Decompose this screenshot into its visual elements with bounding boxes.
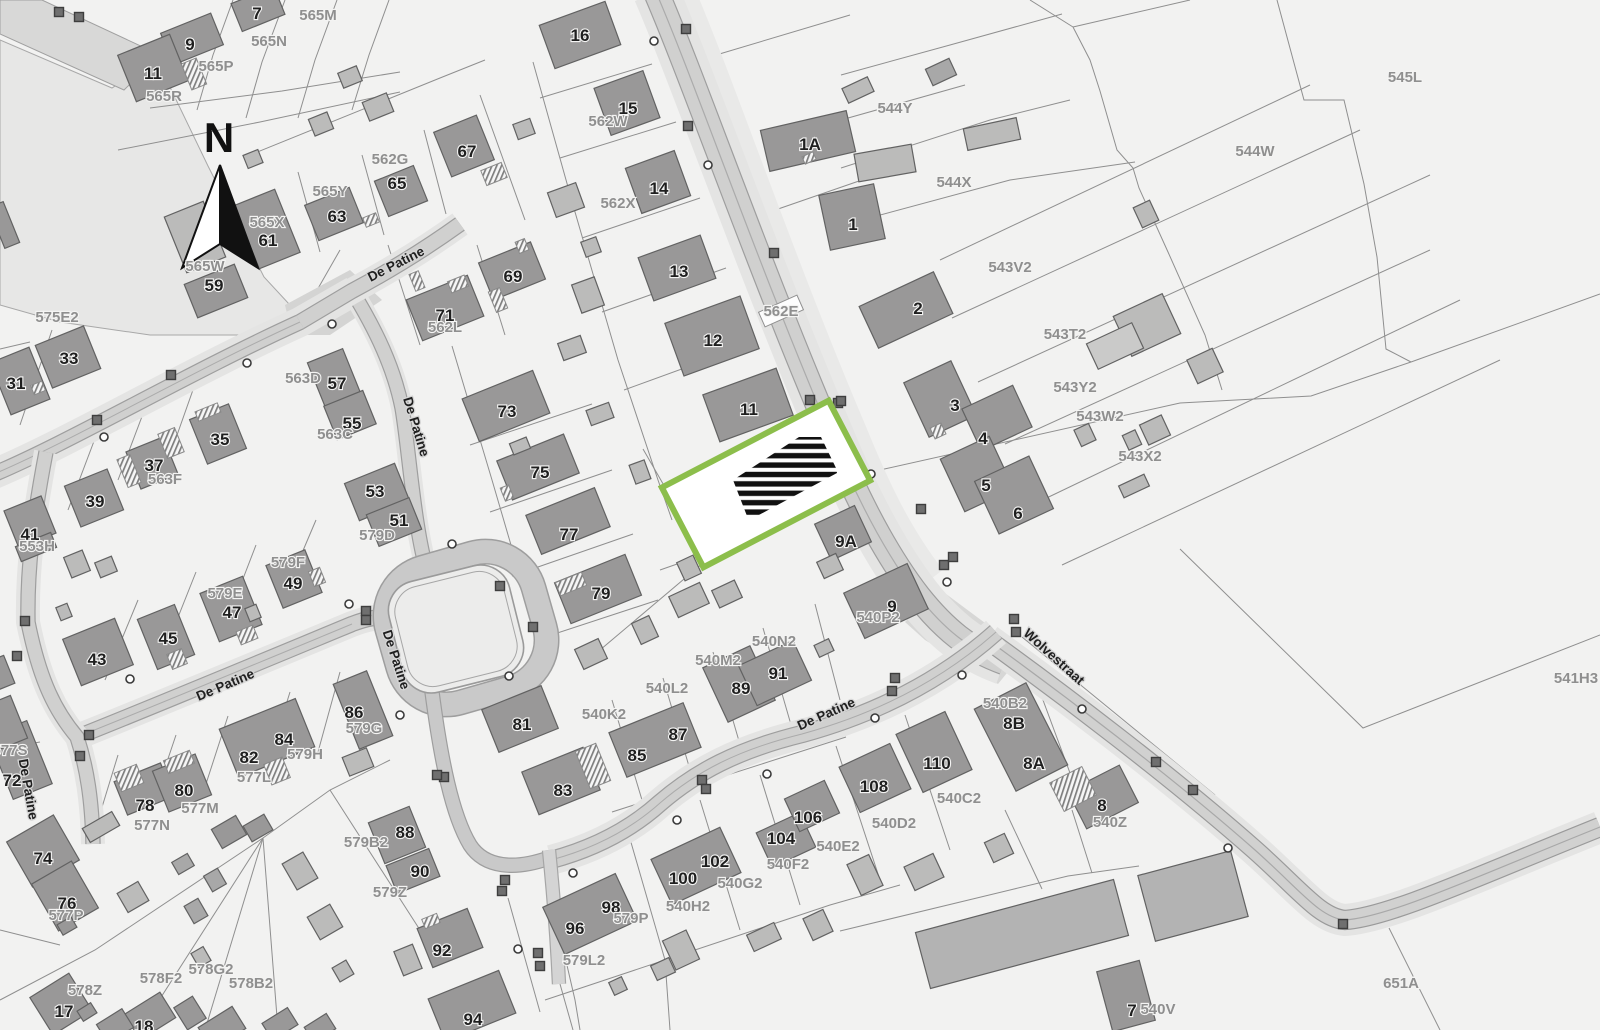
svg-text:1: 1	[848, 215, 857, 234]
svg-text:8: 8	[1097, 796, 1106, 815]
svg-text:13: 13	[670, 262, 689, 281]
svg-text:543X2: 543X2	[1118, 448, 1161, 465]
svg-text:110: 110	[923, 754, 950, 773]
svg-text:11: 11	[740, 400, 758, 419]
svg-text:43: 43	[88, 650, 107, 669]
svg-text:77: 77	[560, 525, 579, 544]
svg-text:579D: 579D	[359, 527, 395, 544]
svg-text:553H: 553H	[19, 538, 55, 555]
svg-text:543W2: 543W2	[1076, 408, 1124, 425]
svg-text:106: 106	[794, 808, 822, 827]
svg-text:104: 104	[767, 829, 796, 848]
svg-text:7: 7	[252, 4, 261, 23]
svg-text:562E: 562E	[763, 303, 798, 320]
svg-text:88: 88	[396, 823, 415, 842]
svg-text:579F: 579F	[271, 554, 305, 571]
svg-text:543T2: 543T2	[1044, 326, 1087, 343]
svg-text:82: 82	[240, 748, 259, 767]
svg-text:540N2: 540N2	[752, 633, 796, 650]
svg-text:8A: 8A	[1023, 754, 1045, 773]
svg-text:575E2: 575E2	[35, 309, 78, 326]
svg-text:61: 61	[259, 231, 278, 250]
svg-text:N: N	[204, 114, 234, 161]
svg-text:78: 78	[136, 796, 155, 815]
svg-text:39: 39	[86, 492, 105, 511]
svg-text:577M: 577M	[181, 800, 219, 817]
svg-text:579G: 579G	[346, 720, 383, 737]
svg-text:578F2: 578F2	[140, 970, 183, 987]
svg-text:579B2: 579B2	[344, 834, 388, 851]
svg-text:12: 12	[704, 331, 723, 350]
svg-text:563F: 563F	[148, 471, 182, 488]
svg-text:100: 100	[669, 869, 697, 888]
svg-text:565R: 565R	[146, 88, 182, 105]
svg-text:540L2: 540L2	[646, 680, 689, 697]
svg-text:577N: 577N	[134, 817, 170, 834]
svg-text:5: 5	[981, 476, 990, 495]
svg-text:544X: 544X	[936, 174, 971, 191]
svg-text:85: 85	[628, 746, 647, 765]
svg-text:565Y: 565Y	[312, 183, 347, 200]
svg-text:9A: 9A	[835, 532, 857, 551]
svg-text:565M: 565M	[299, 7, 337, 24]
svg-text:540G2: 540G2	[717, 875, 762, 892]
svg-text:80: 80	[175, 781, 194, 800]
svg-text:562G: 562G	[372, 151, 409, 168]
svg-text:540Z: 540Z	[1093, 814, 1127, 831]
svg-text:45: 45	[159, 629, 178, 648]
svg-text:11: 11	[144, 64, 162, 83]
svg-text:541H3: 541H3	[1554, 670, 1598, 687]
svg-text:543V2: 543V2	[988, 259, 1031, 276]
svg-text:540M2: 540M2	[695, 652, 741, 669]
svg-text:578B2: 578B2	[229, 975, 273, 992]
svg-text:651A: 651A	[1383, 975, 1419, 992]
svg-text:579P: 579P	[613, 910, 648, 927]
svg-text:540E2: 540E2	[816, 838, 859, 855]
svg-text:1A: 1A	[799, 135, 821, 154]
svg-text:562L: 562L	[428, 319, 462, 336]
svg-text:540C2: 540C2	[937, 790, 981, 807]
svg-text:94: 94	[464, 1010, 483, 1029]
svg-text:65: 65	[388, 174, 407, 193]
svg-text:33: 33	[60, 349, 79, 368]
svg-text:9: 9	[185, 35, 194, 54]
svg-text:69: 69	[504, 267, 523, 286]
svg-text:59: 59	[205, 276, 224, 295]
svg-text:73: 73	[498, 402, 517, 421]
svg-text:47: 47	[223, 603, 242, 622]
svg-text:562X: 562X	[600, 195, 635, 212]
svg-text:4: 4	[978, 429, 988, 448]
svg-text:565W: 565W	[185, 258, 225, 275]
svg-text:540F2: 540F2	[767, 856, 810, 873]
svg-text:89: 89	[732, 679, 751, 698]
svg-text:579L2: 579L2	[563, 952, 606, 969]
svg-text:540K2: 540K2	[582, 706, 626, 723]
svg-text:67: 67	[458, 142, 477, 161]
svg-text:75: 75	[531, 463, 550, 482]
svg-text:540B2: 540B2	[983, 695, 1027, 712]
svg-text:540V: 540V	[1140, 1001, 1175, 1018]
svg-text:563D: 563D	[285, 370, 321, 387]
svg-text:96: 96	[566, 919, 585, 938]
svg-text:90: 90	[411, 862, 430, 881]
svg-text:577L: 577L	[237, 769, 271, 786]
svg-text:8B: 8B	[1003, 714, 1025, 733]
svg-text:7: 7	[1127, 1001, 1136, 1020]
svg-text:57: 57	[328, 374, 347, 393]
svg-text:83: 83	[554, 781, 573, 800]
svg-text:31: 31	[7, 374, 26, 393]
svg-text:35: 35	[211, 430, 230, 449]
svg-text:91: 91	[769, 664, 788, 683]
svg-text:53: 53	[366, 482, 385, 501]
svg-text:565P: 565P	[198, 58, 233, 75]
svg-text:579Z: 579Z	[373, 884, 407, 901]
svg-text:578Z: 578Z	[68, 982, 102, 999]
svg-text:49: 49	[284, 574, 303, 593]
svg-text:79: 79	[592, 584, 611, 603]
svg-text:14: 14	[650, 179, 669, 198]
svg-text:92: 92	[433, 941, 452, 960]
svg-text:565N: 565N	[251, 33, 287, 50]
svg-text:63: 63	[328, 207, 347, 226]
svg-text:540P2: 540P2	[856, 609, 899, 626]
svg-text:2: 2	[913, 299, 922, 318]
svg-text:74: 74	[34, 849, 53, 868]
svg-text:543Y2: 543Y2	[1053, 379, 1096, 396]
svg-text:540H2: 540H2	[666, 898, 710, 915]
svg-text:545L: 545L	[1388, 69, 1422, 86]
svg-text:562W: 562W	[588, 113, 628, 130]
svg-text:18: 18	[135, 1017, 154, 1030]
svg-text:3: 3	[950, 396, 959, 415]
svg-text:565X: 565X	[249, 214, 284, 231]
svg-text:108: 108	[860, 777, 888, 796]
svg-text:17: 17	[55, 1002, 74, 1021]
svg-text:579E: 579E	[207, 585, 242, 602]
svg-text:579H: 579H	[287, 746, 323, 763]
svg-text:577P: 577P	[48, 907, 83, 924]
svg-text:577S: 577S	[0, 742, 28, 759]
svg-text:563C: 563C	[317, 426, 353, 443]
svg-text:16: 16	[571, 26, 590, 45]
svg-text:87: 87	[669, 725, 688, 744]
svg-text:540D2: 540D2	[872, 815, 916, 832]
svg-text:81: 81	[513, 715, 532, 734]
svg-text:544Y: 544Y	[877, 100, 912, 117]
svg-text:578G2: 578G2	[188, 961, 233, 978]
svg-text:102: 102	[701, 852, 729, 871]
svg-text:544W: 544W	[1235, 143, 1275, 160]
svg-text:6: 6	[1013, 504, 1022, 523]
